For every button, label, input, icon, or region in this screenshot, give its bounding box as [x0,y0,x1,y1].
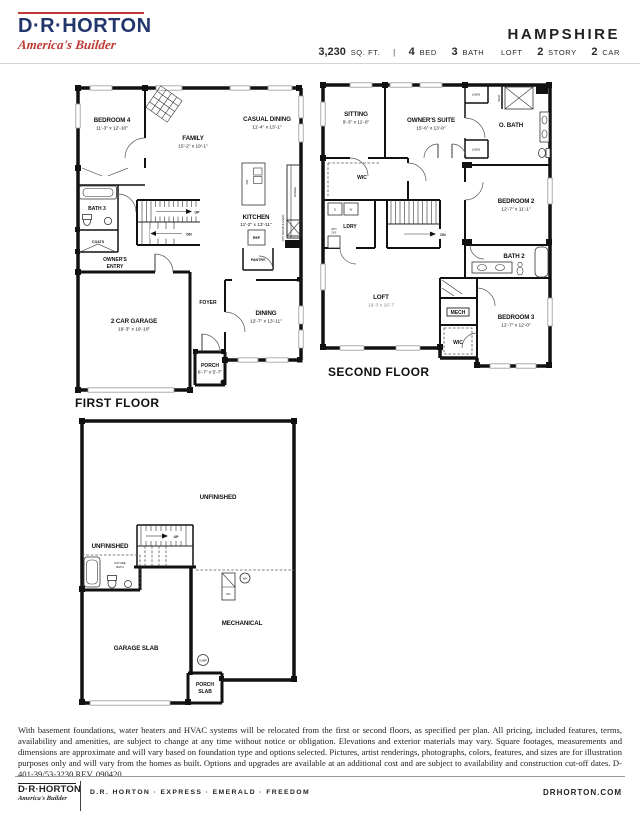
svg-text:D/S: D/S [332,231,337,235]
svg-text:11'-4" x 13'-1": 11'-4" x 13'-1" [252,125,281,131]
room-label-ldry: LDRY [343,224,357,230]
figure-icon [518,262,522,266]
svg-text:6'-7" x 5'-7": 6'-7" x 5'-7" [198,370,222,376]
svg-text:12'-7" x 13'-11": 12'-7" x 13'-11" [250,319,282,325]
room-label-obath: O. BATH [499,122,524,129]
footer-brands-line: D.R. HORTON · EXPRESS · EMERALD · FREEDO… [90,789,310,796]
svg-text:11'-2" x 13'-11": 11'-2" x 13'-11" [240,222,272,228]
basement-junctions [79,418,297,705]
vanity [540,112,549,142]
garage-door [90,701,170,705]
first-floor-stairs: UP DN [137,200,200,245]
bed-label: BED [420,48,437,57]
footer-divider [15,776,625,777]
second-floor-labels: SITTING 9'-3" x 11'-0" OWNER'S SUITE 15'… [343,93,535,347]
porch-column [221,380,226,385]
svg-text:12'-7" x 12'-0": 12'-7" x 12'-0" [501,323,531,329]
svg-text:ENTRY: ENTRY [107,264,124,270]
logo-tagline: America's Builder [17,37,145,53]
room-label-loft: LOFT [373,294,389,301]
label-linen-mid: LINEN [472,148,480,152]
svg-text:W: W [350,208,353,212]
specs-separator: | [393,48,396,57]
opt-double-oven-label: OPT DOUBLE OVEN [281,215,285,242]
second-floor-plan: DN SEAT [320,78,580,373]
header-divider [0,63,640,64]
floorplan-flyer-page: D·R·HORTON America's Builder HAMPSHIRE 3… [0,0,640,828]
bed-count: 4 [409,46,415,58]
wh-label: WH [243,577,248,581]
label-garage-slab: GARAGE SLAB [114,645,159,652]
basement-fixtures: DG WH SUMP [84,557,250,666]
first-floor-title: FIRST FLOOR [75,396,159,410]
disclaimer-text: With basement foundations, water heaters… [18,725,622,781]
footer-logo-wordmark: D·R·HORTON [18,785,76,795]
footer: D·R·HORTON America's Builder D.R. HORTON… [18,781,622,815]
room-label-bath3: BATH 3 [88,206,106,212]
range-label: RANGE [293,187,297,197]
logo-red-rule [18,12,144,14]
second-floor-stairs: DN [387,200,446,239]
opt-drop-sink [328,236,340,248]
toilet [539,149,546,158]
label-mechanical: MECHANICAL [222,620,263,627]
room-label-garage: 2 CAR GARAGE [111,318,157,325]
room-label-sitting: SITTING [344,111,368,118]
room-label-owners-suite: OWNER'S SUITE [407,117,455,124]
room-label-wic-owner: WIC [357,175,367,181]
ref-label: REF [253,236,261,240]
shelf-lines [442,280,462,296]
bathtub [80,186,117,199]
room-label-wic-bottom: WIC [453,340,463,346]
sump-label: SUMP [199,659,207,663]
story-count: 2 [537,46,543,58]
bath-label: BATH [462,48,484,57]
car-count: 2 [591,46,597,58]
stairs-dn-label: DN [186,233,192,237]
room-label-foyer: FOYER [199,300,217,306]
room-label-family: FAMILY [182,135,204,142]
label-porch-slab: PORCH [196,682,214,688]
svg-text:11'-3" x 12'-10": 11'-3" x 12'-10" [96,126,128,132]
footer-drhorton-logo: D·R·HORTON America's Builder [18,783,76,802]
seat-label: SEAT [497,94,501,101]
footer-website: DRHORTON.COM [543,788,622,797]
room-label-bedroom4: BEDROOM 4 [94,117,131,124]
room-label-coats: COATS [92,240,105,244]
loft-label: LOFT [501,48,523,57]
room-label-pantry: PANTRY [251,258,266,262]
dishwasher-label: DW [245,179,249,184]
svg-text:D: D [334,208,336,212]
sink [104,217,111,224]
room-label-kitchen: KITCHEN [243,214,270,221]
svg-text:BATH: BATH [116,565,123,569]
stairs-up-label: UP [195,211,201,215]
basement-plan: UP DG WH SUMP UNFINISHED UNFINISHED FUTU… [70,413,310,715]
plan-specs: 3,230 SQ. FT. | 4 BED 3 BATH LOFT 2 STOR… [318,46,620,58]
svg-text:9'-3" x 11'-0": 9'-3" x 11'-0" [343,120,370,126]
logo-wordmark: D·R·HORTON [18,16,144,37]
header: D·R·HORTON America's Builder HAMPSHIRE 3… [0,0,640,63]
basement-labels: UNFINISHED UNFINISHED FUTURE BATH GARAGE… [92,494,263,695]
kitchen-cabinets [287,165,301,238]
room-label-mech: MECH [451,310,466,316]
basement-stairs: UP [137,525,193,567]
room-label-porch: PORCH [201,363,219,369]
svg-text:15'-6" x 13'-0": 15'-6" x 13'-0" [416,126,446,132]
sqft-unit: SQ. FT. [351,48,381,57]
garage-door [88,388,174,392]
svg-text:19'-3 x 16'-7: 19'-3 x 16'-7 [368,303,394,309]
plan-name: HAMPSHIRE [318,26,620,43]
stairs-up-label: UP [174,535,180,539]
svg-text:12'-7" x 11'-1": 12'-7" x 11'-1" [501,207,530,213]
footer-vertical-bar [80,781,81,811]
svg-text:SLAB: SLAB [198,689,212,695]
story-label: STORY [548,48,577,57]
car-label: CAR [602,48,620,57]
label-unfinished-main: UNFINISHED [200,494,237,501]
furnace-label: DG [226,592,230,596]
room-label-casual-dining: CASUAL DINING [243,116,291,123]
second-floor-title: SECOND FLOOR [328,365,429,379]
room-label-bedroom2: BEDROOM 2 [498,198,535,205]
stairs-dn-label: DN [440,233,446,237]
first-floor-walls [78,88,301,390]
svg-text:15'-2" x 19'-1": 15'-2" x 19'-1" [178,144,208,150]
header-right: HAMPSHIRE 3,230 SQ. FT. | 4 BED 3 BATH L… [318,26,620,58]
bath-count: 3 [452,46,458,58]
room-label-owners-entry: OWNER'S [103,257,127,263]
bath2-vanity [472,262,512,273]
footer-logo-tagline: America's Builder [18,795,77,802]
bathtub [535,247,548,277]
label-unfinished-left: UNFINISHED [92,543,129,550]
future-sink [125,581,132,588]
first-floor-plan: UP DN DW [60,80,320,412]
room-label-bath2: BATH 2 [503,253,525,260]
sqft-value: 3,230 [318,46,346,58]
room-label-dining: DINING [255,310,276,317]
hatched-tile-decoration [146,86,182,122]
label-linen-top: LINEN [472,93,480,97]
first-floor-fixtures: DW RANGE OPT DOUBLE OVEN REF [80,86,302,245]
room-label-bedroom3: BEDROOM 3 [498,314,535,321]
drhorton-logo: D·R·HORTON America's Builder [18,12,144,53]
svg-text:19'-3" x 19'-10": 19'-3" x 19'-10" [118,327,150,333]
